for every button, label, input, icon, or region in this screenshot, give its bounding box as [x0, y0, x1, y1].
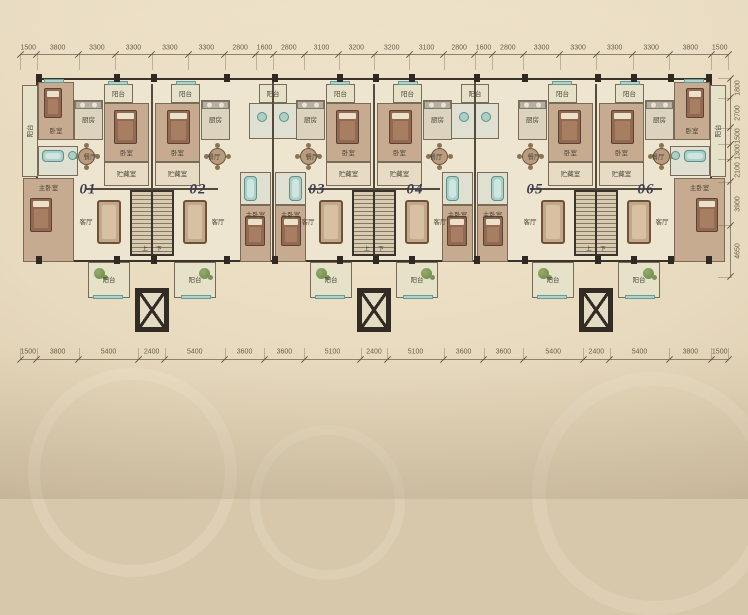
- dim-bottom-value: 5400: [101, 349, 117, 356]
- dim-extension: [523, 54, 524, 70]
- dim-top-value: 2800: [500, 45, 516, 52]
- dim-right-value: 3900: [735, 196, 742, 212]
- dim-bottom-value: 3800: [683, 349, 699, 356]
- dim-extension: [633, 54, 634, 70]
- dim-top-value: 3300: [162, 45, 178, 52]
- dim-top-value: 3300: [199, 45, 215, 52]
- dim-top-value: 1600: [257, 45, 273, 52]
- dim-top-value: 3800: [50, 45, 66, 52]
- dim-extension: [374, 54, 375, 70]
- dim-extension: [152, 54, 153, 70]
- dim-top-value: 3200: [384, 45, 400, 52]
- dim-top-value: 3300: [534, 45, 550, 52]
- dim-extension: [115, 54, 116, 70]
- dim-bottom-value: 5400: [632, 349, 648, 356]
- dim-top-value: 3300: [89, 45, 105, 52]
- dim-bottom-value: 1500: [21, 349, 37, 356]
- dim-extension: [37, 54, 38, 70]
- dim-bottom-value: 3600: [277, 349, 293, 356]
- dim-extension: [225, 54, 226, 70]
- dim-extension: [339, 54, 340, 70]
- dim-extension: [596, 54, 597, 70]
- dim-extension: [475, 54, 476, 70]
- dim-right-value: 4650: [735, 243, 742, 259]
- dim-right-value: 2700: [735, 105, 742, 121]
- dim-extension: [188, 54, 189, 70]
- dim-top-value: 3300: [607, 45, 623, 52]
- dim-top-value: 3800: [683, 45, 699, 52]
- dim-top-value: 3300: [570, 45, 586, 52]
- dim-extension: [444, 54, 445, 70]
- dim-top-value: 1500: [21, 45, 37, 52]
- dim-bottom-value: 3600: [237, 349, 253, 356]
- dim-extension: [79, 54, 80, 70]
- dim-extension: [669, 54, 670, 70]
- dim-bottom-value: 5100: [408, 349, 424, 356]
- dim-bottom-value: 5400: [187, 349, 203, 356]
- dim-bottom-value: 5400: [545, 349, 561, 356]
- dim-right-value: 1300: [735, 144, 742, 160]
- dim-extension: [728, 54, 729, 70]
- dim-top-value: 3100: [419, 45, 435, 52]
- dimension-annotations: 1500380033003300330033002800160028003100…: [0, 0, 748, 499]
- dim-extension: [492, 54, 493, 70]
- dim-top-value: 1500: [712, 45, 728, 52]
- dim-bottom-value: 2400: [144, 349, 160, 356]
- dim-top-value: 2800: [232, 45, 248, 52]
- dim-extension: [304, 54, 305, 70]
- dim-extension: [560, 54, 561, 70]
- dim-right-value: 2100: [735, 163, 742, 179]
- dim-top-value: 3200: [349, 45, 365, 52]
- dim-top-value: 3300: [126, 45, 142, 52]
- dim-extension: [711, 54, 712, 70]
- dim-extension: [273, 54, 274, 70]
- dim-bottom-value: 3800: [50, 349, 66, 356]
- dim-bottom-value: 5100: [325, 349, 341, 356]
- dim-bottom-value: 1500: [712, 349, 728, 356]
- dim-top-value: 2800: [451, 45, 467, 52]
- dim-top-value: 1600: [476, 45, 492, 52]
- dim-bottom-value: 3600: [496, 349, 512, 356]
- dim-extension: [20, 54, 21, 70]
- dim-right-value: 1500: [735, 128, 742, 144]
- dim-extension: [409, 54, 410, 70]
- dim-top-value: 3100: [314, 45, 330, 52]
- dim-top-value: 3300: [643, 45, 659, 52]
- dim-bottom-value: 3600: [456, 349, 472, 356]
- dim-line-right: [730, 78, 731, 277]
- dim-bottom-value: 2400: [589, 349, 605, 356]
- dim-bottom-value: 2400: [366, 349, 382, 356]
- dim-top-value: 2800: [281, 45, 297, 52]
- page-background: 餐厅餐厅客厅客厅上下餐厅餐厅客厅客厅上下餐厅餐厅客厅客厅上下阳台阳台阳台阳台卧室…: [0, 0, 748, 499]
- dim-line-bottom: [20, 359, 728, 360]
- dim-right-value: 1800: [735, 80, 742, 96]
- dim-extension: [256, 54, 257, 70]
